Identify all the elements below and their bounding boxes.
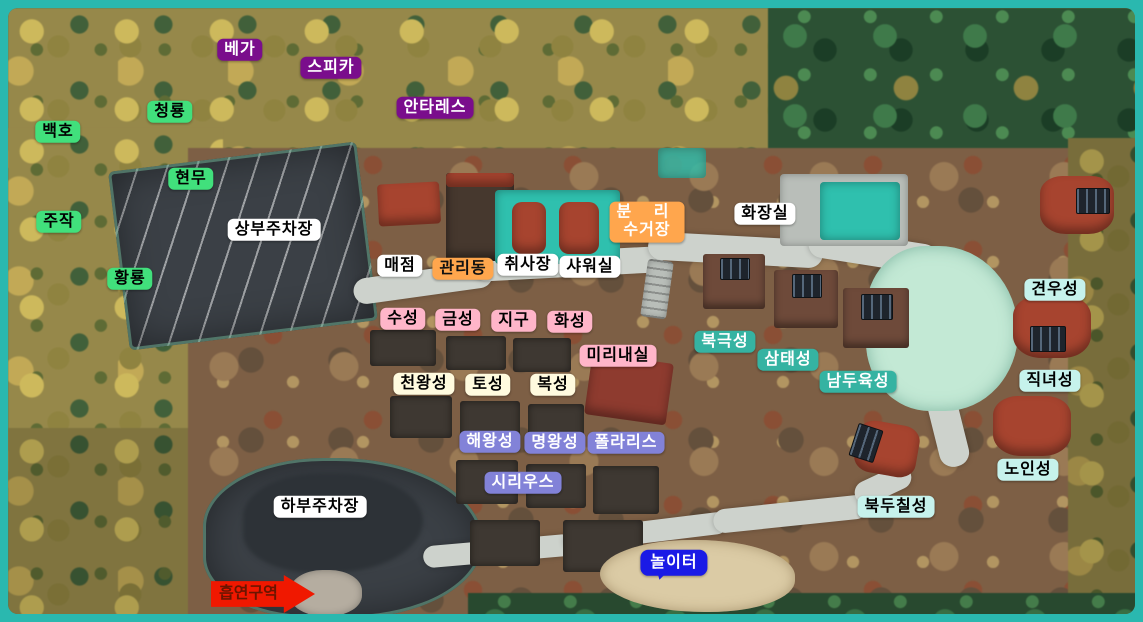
- label-layer: 베가스피카안타레스청룡백호현무주작황룡상부주차장매점관리동취사장샤워실분 리수거…: [8, 8, 1135, 614]
- map-label-jujak: 주작: [36, 211, 81, 233]
- map-label-spica: 스피카: [300, 57, 361, 79]
- map-label-mirinae-room: 미리내실: [580, 345, 657, 367]
- map-label-admin: 관리동: [432, 258, 493, 280]
- map-label-antares: 안타레스: [397, 97, 474, 119]
- aerial-photo: 베가스피카안타레스청룡백호현무주작황룡상부주차장매점관리동취사장샤워실분 리수거…: [8, 8, 1135, 614]
- map-label-namduyukseong: 남두육성: [820, 371, 897, 393]
- map-label-polaris: 폴라리스: [588, 432, 665, 454]
- map-label-recycling: 분 리수거장: [610, 202, 685, 243]
- map-label-gyeonuseong: 견우성: [1024, 279, 1085, 301]
- map-label-playground: 놀이터: [640, 550, 707, 576]
- map-label-myeongwangseong: 명왕성: [524, 432, 585, 454]
- map-label-vega: 베가: [217, 39, 262, 61]
- map-label-geumseong: 금성: [435, 309, 480, 331]
- map-label-samtaeseong: 삼태성: [757, 349, 818, 371]
- map-label-noinseong: 노인성: [997, 459, 1058, 481]
- map-label-hwaseong: 화성: [547, 311, 592, 333]
- map-label-jigu: 지구: [491, 310, 536, 332]
- map-label-store: 매점: [377, 255, 422, 277]
- map-label-shower-room: 샤워실: [559, 256, 620, 278]
- map-label-toilet: 화장실: [734, 203, 795, 225]
- map-label-hwangryong: 황룡: [107, 268, 152, 290]
- map-label-haewangseong: 해왕성: [459, 431, 520, 453]
- map-label-baekho: 백호: [35, 121, 80, 143]
- map-label-toseong: 토성: [465, 374, 510, 396]
- map-label-upper-parking: 상부주차장: [228, 219, 321, 241]
- map-label-cheongryong: 청룡: [147, 101, 192, 123]
- map-label-cook-room: 취사장: [497, 254, 558, 276]
- map-label-bukgeukseong: 북극성: [694, 331, 755, 353]
- map-label-bokseong: 복성: [530, 374, 575, 396]
- map-label-sirius: 시리우스: [485, 472, 562, 494]
- map-label-smoking-area: 흡연구역: [211, 575, 315, 613]
- map-label-bukduchilseong: 북두칠성: [858, 496, 935, 518]
- map-label-lower-parking: 하부주차장: [274, 496, 367, 518]
- map-label-jiknyeoseong: 직녀성: [1019, 370, 1080, 392]
- map-label-suseong: 수성: [380, 308, 425, 330]
- map-label-cheonwangseong: 천왕성: [393, 373, 454, 395]
- map-label-hyeonmu: 현무: [168, 168, 213, 190]
- map-frame: 베가스피카안타레스청룡백호현무주작황룡상부주차장매점관리동취사장샤워실분 리수거…: [0, 0, 1143, 622]
